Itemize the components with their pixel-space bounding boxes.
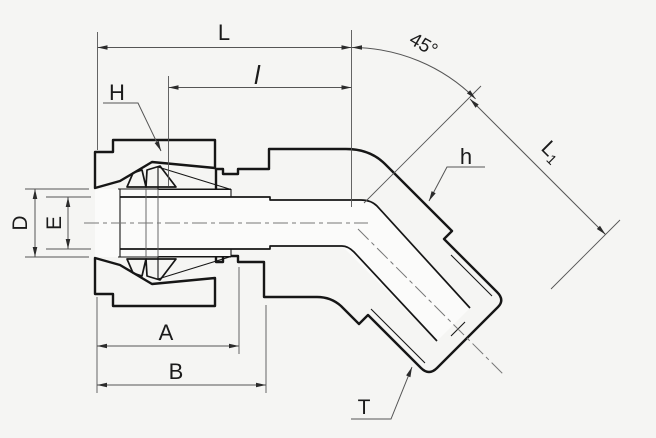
front-ferrule-top xyxy=(146,166,176,187)
label-B: B xyxy=(169,359,184,384)
label-h: h xyxy=(460,144,472,169)
label-E: E xyxy=(43,216,66,230)
leader-H xyxy=(103,103,161,151)
label-L1: L1 xyxy=(535,136,567,168)
label-D: D xyxy=(9,215,32,230)
label-l: l xyxy=(254,60,261,90)
dim-l1-line xyxy=(470,99,606,235)
nut-section-top xyxy=(95,140,215,188)
bore xyxy=(95,189,470,341)
fitting-drawing: L l 45° H h L1 D E A B T xyxy=(0,0,656,438)
leader-h xyxy=(429,167,485,201)
label-T: T xyxy=(358,396,371,419)
angle-arc xyxy=(352,48,476,99)
ext-l1-end xyxy=(551,220,620,289)
angled-centerline xyxy=(358,229,505,376)
bore-fill xyxy=(95,189,470,341)
label-A: A xyxy=(159,320,174,345)
label-L: L xyxy=(218,20,230,45)
label-H: H xyxy=(109,80,125,105)
technical-drawing-page: L l 45° H h L1 D E A B T xyxy=(0,0,656,438)
thread-line-upper xyxy=(451,255,492,296)
front-ferrule-bottom xyxy=(146,259,176,280)
nut-section-bottom xyxy=(95,258,215,306)
label-45deg: 45° xyxy=(406,29,441,62)
